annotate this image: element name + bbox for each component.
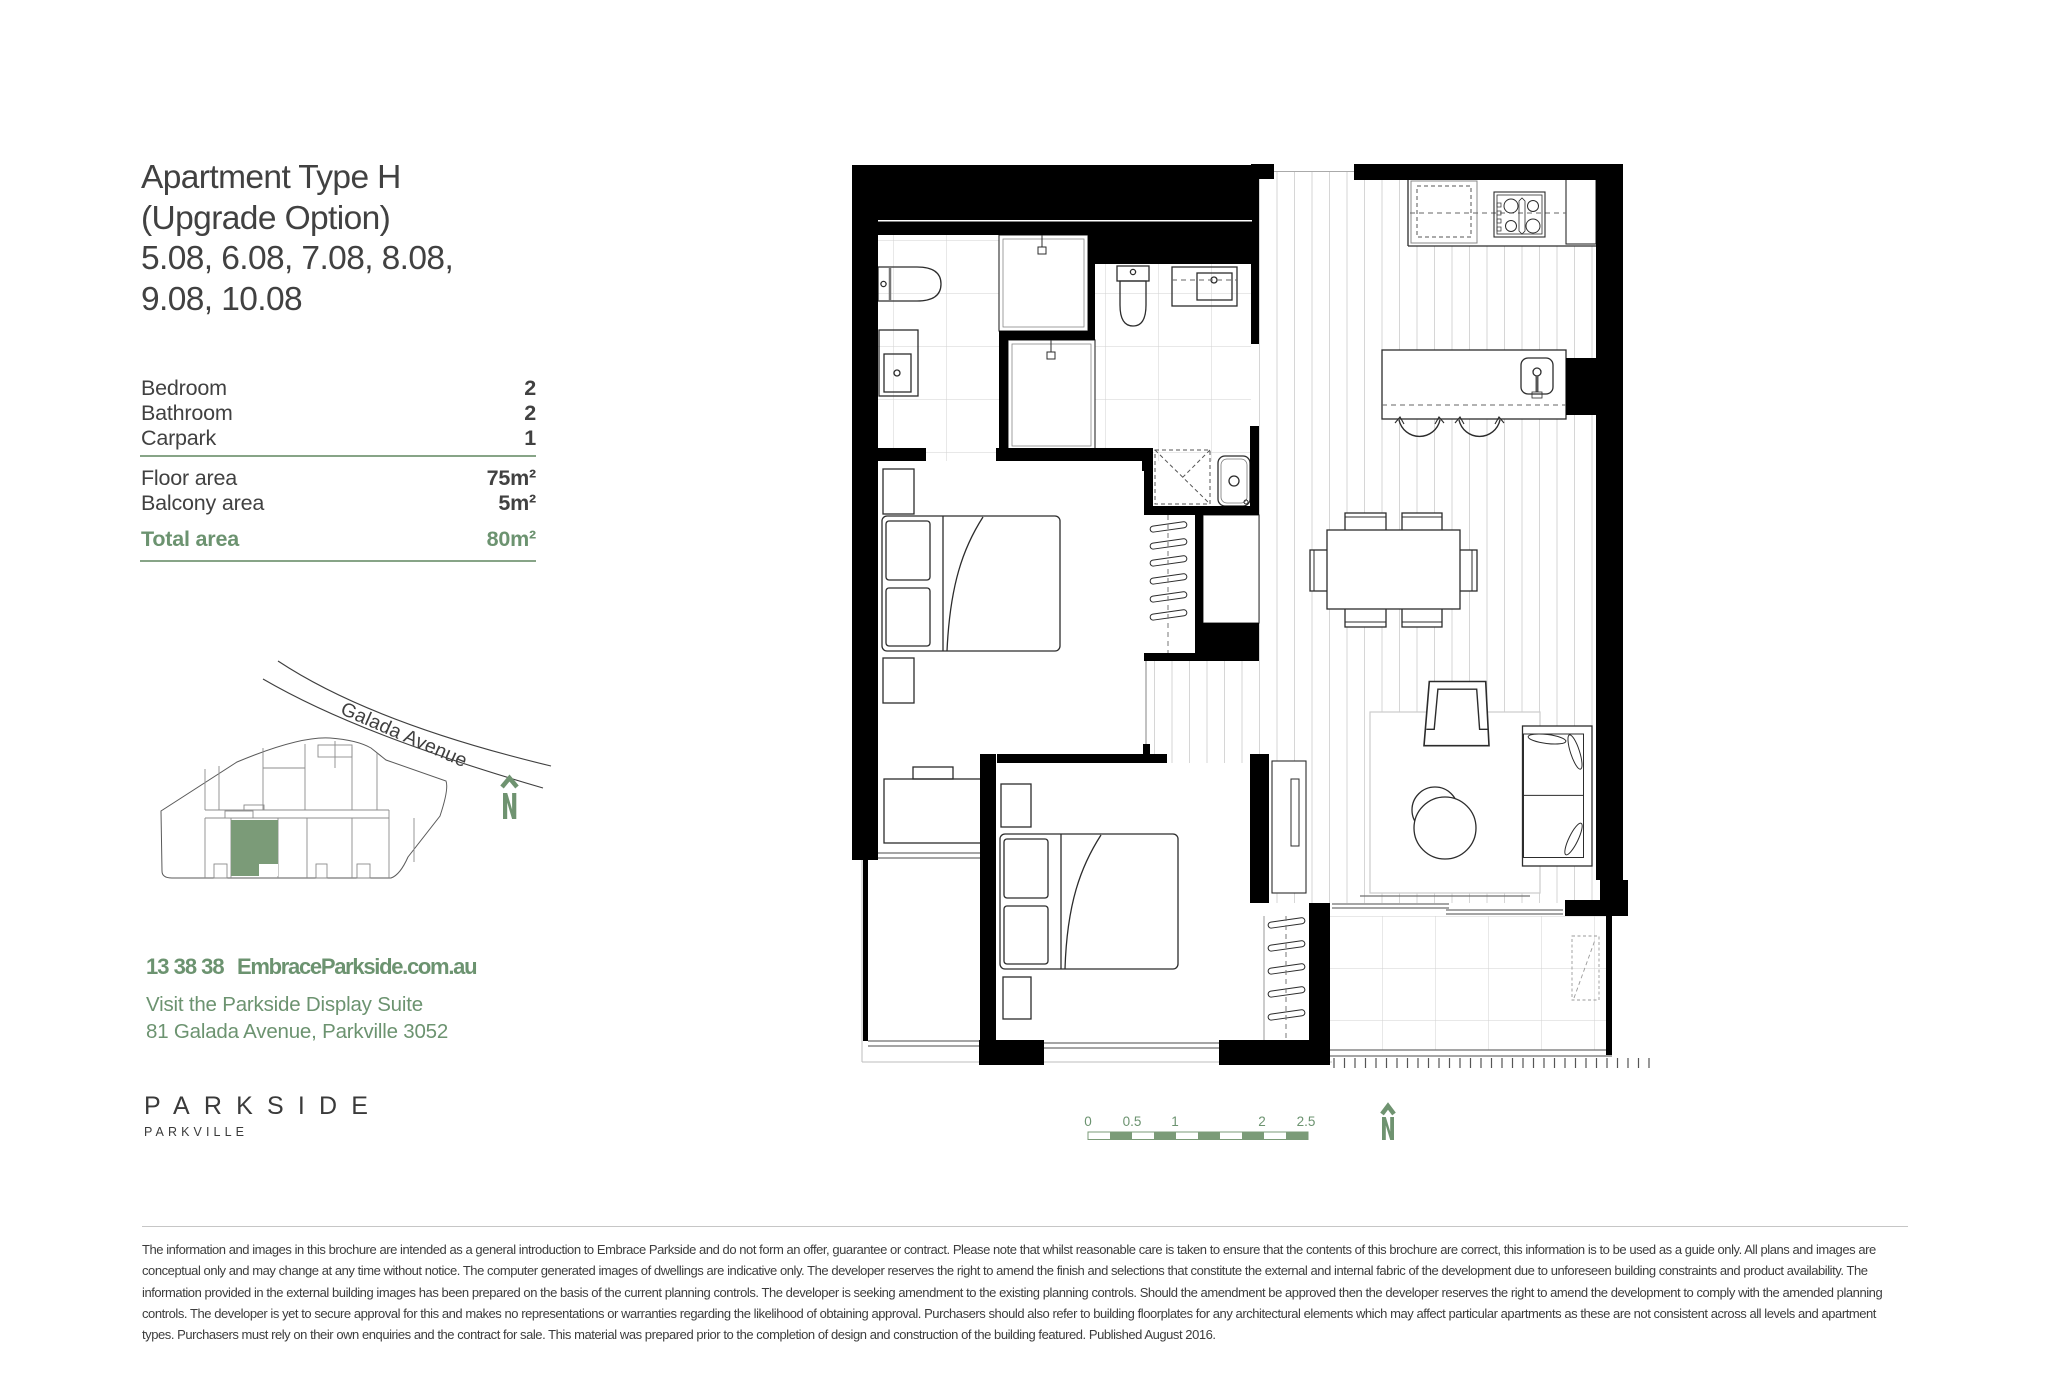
svg-text:0: 0 [1084, 1114, 1092, 1129]
svg-text:1: 1 [1171, 1114, 1179, 1129]
svg-text:Galada Avenue: Galada Avenue [337, 698, 470, 772]
svg-text:2: 2 [1258, 1114, 1266, 1129]
svg-text:2.5: 2.5 [1297, 1114, 1316, 1129]
svg-text:0.5: 0.5 [1123, 1114, 1142, 1129]
